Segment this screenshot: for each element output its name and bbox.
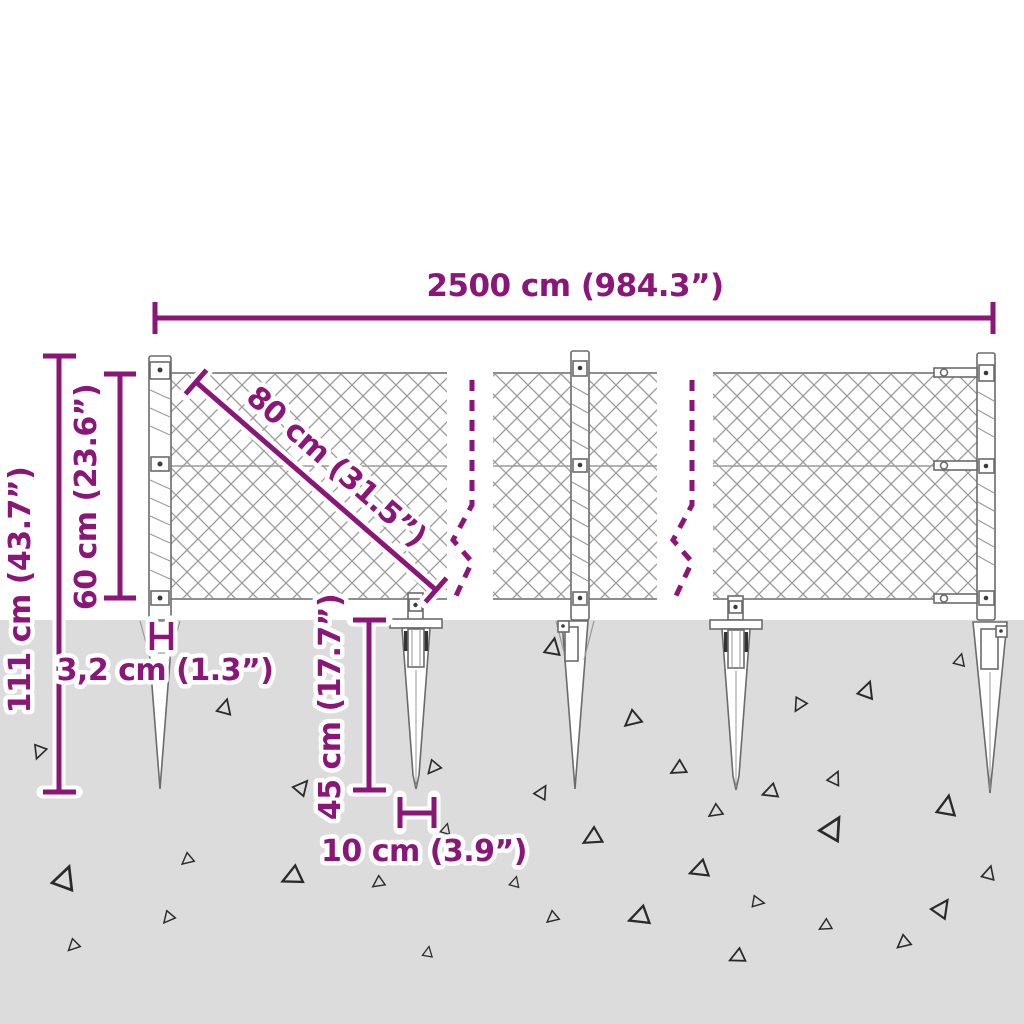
dimension-total-width: [155, 302, 993, 334]
fence-post-middle: [571, 351, 589, 620]
fence-dimension-diagram: 2500 cm (984.3”) 111 cm (43.7”) 60 cm (2…: [0, 0, 1024, 1024]
label-mesh-height: 60 cm (23.6”): [69, 384, 104, 610]
label-total-height: 111 cm (43.7”): [3, 467, 38, 714]
diagram-canvas: 2500 cm (984.3”) 111 cm (43.7”) 60 cm (2…: [0, 0, 1024, 1024]
label-post-width: 3,2 cm (1.3”): [57, 653, 274, 688]
label-total-width: 2500 cm (984.3”): [426, 268, 723, 304]
fence-mesh-panel-3: [713, 373, 978, 600]
fence-post-stub-2: [408, 593, 423, 620]
fence-post-left: [149, 356, 171, 620]
panel-break-mark-right: [673, 380, 692, 600]
label-spike-length: 45 cm (17.7”): [313, 594, 348, 820]
fence-post-stub-4: [728, 596, 743, 620]
label-spike-spacing: 10 cm (3.9”): [321, 834, 527, 869]
dimension-mesh-height: [104, 374, 136, 598]
panel-break-mark-left: [453, 380, 472, 600]
